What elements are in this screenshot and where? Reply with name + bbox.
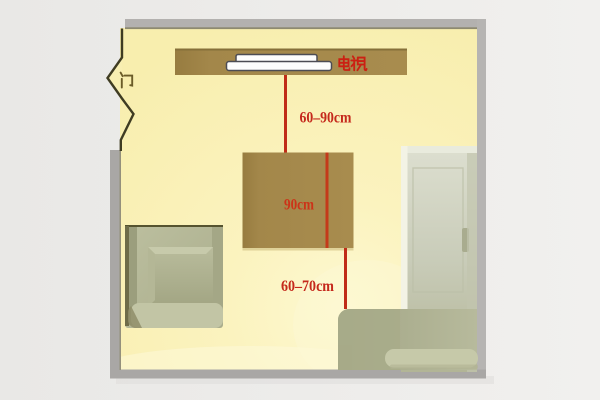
svg-text:60–90cm: 60–90cm [300,110,353,127]
svg-text:90cm: 90cm [284,197,315,214]
svg-text:60–70cm: 60–70cm [281,278,335,295]
